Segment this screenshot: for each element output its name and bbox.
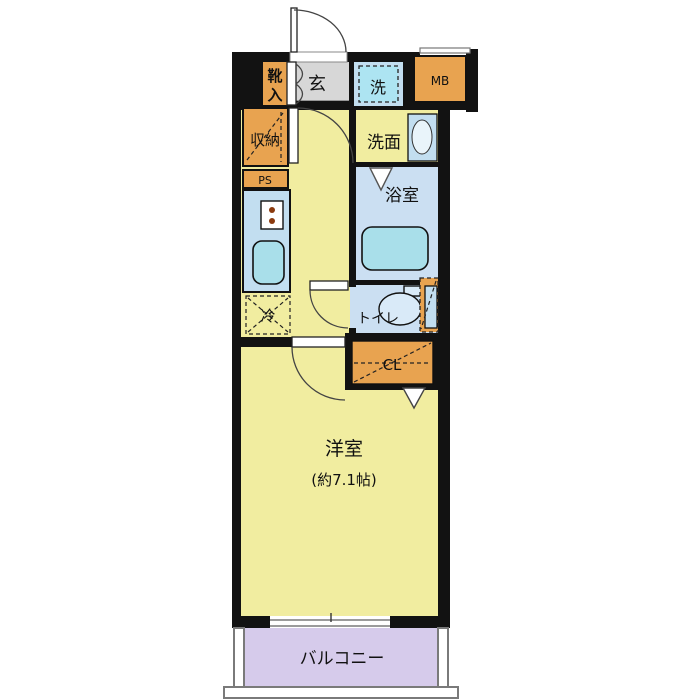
entrance-label: 玄 bbox=[308, 74, 326, 95]
pipe-space-label: PS bbox=[258, 174, 272, 187]
bathtub bbox=[362, 227, 428, 270]
wall-bottom-left bbox=[232, 616, 270, 628]
meter-box-label: MB bbox=[431, 74, 450, 88]
entrance-door-leaf bbox=[291, 8, 297, 52]
shoe-box-label-1: 靴 bbox=[267, 67, 282, 85]
balcony-label: バルコニー bbox=[300, 649, 385, 669]
entrance-door-sill bbox=[290, 52, 347, 62]
main-room-floor-right bbox=[350, 390, 438, 617]
washer-label: 洗 bbox=[370, 78, 386, 97]
main-room-door-leaf bbox=[292, 337, 345, 347]
toilet-door-leaf bbox=[310, 281, 348, 290]
closet-label: CL bbox=[383, 356, 402, 374]
hall-door-leaf bbox=[289, 108, 298, 163]
shoe-box-label-2: 入 bbox=[267, 86, 282, 104]
balcony-rail-left bbox=[234, 628, 244, 688]
wall-kitchen-mainroom bbox=[232, 337, 292, 347]
washroom-label: 洗面 bbox=[367, 133, 401, 153]
toilet-pipe-space-inner bbox=[425, 286, 437, 328]
wall-bottom-right bbox=[390, 616, 448, 628]
entrance-door-swing-arc bbox=[294, 10, 346, 52]
wash-basin-bowl bbox=[412, 120, 432, 154]
main-room-label: 洋室 bbox=[325, 438, 363, 460]
storage-label: 収納 bbox=[250, 131, 280, 149]
mb-top-line bbox=[420, 48, 470, 53]
balcony-rail-bottom bbox=[224, 687, 458, 698]
bathroom-label: 浴室 bbox=[385, 186, 419, 206]
stove-burner-1 bbox=[269, 207, 275, 213]
kitchen-sink bbox=[253, 241, 284, 284]
refrigerator-label: 冷 bbox=[260, 307, 275, 325]
shoe-box-doors bbox=[287, 62, 296, 105]
stove bbox=[261, 201, 283, 229]
toilet-label: トイレ bbox=[357, 311, 399, 327]
wall-washroom-bathroom bbox=[349, 162, 438, 167]
balcony-rail-right bbox=[438, 628, 448, 688]
stove-burner-2 bbox=[269, 218, 275, 224]
floor-plan: 靴 入 玄 洗 MB 収納 PS 洗面 浴室 冷 トイレ CL 洋室 (約7.1… bbox=[0, 0, 700, 700]
main-room-size-label: (約7.1帖) bbox=[311, 471, 377, 489]
